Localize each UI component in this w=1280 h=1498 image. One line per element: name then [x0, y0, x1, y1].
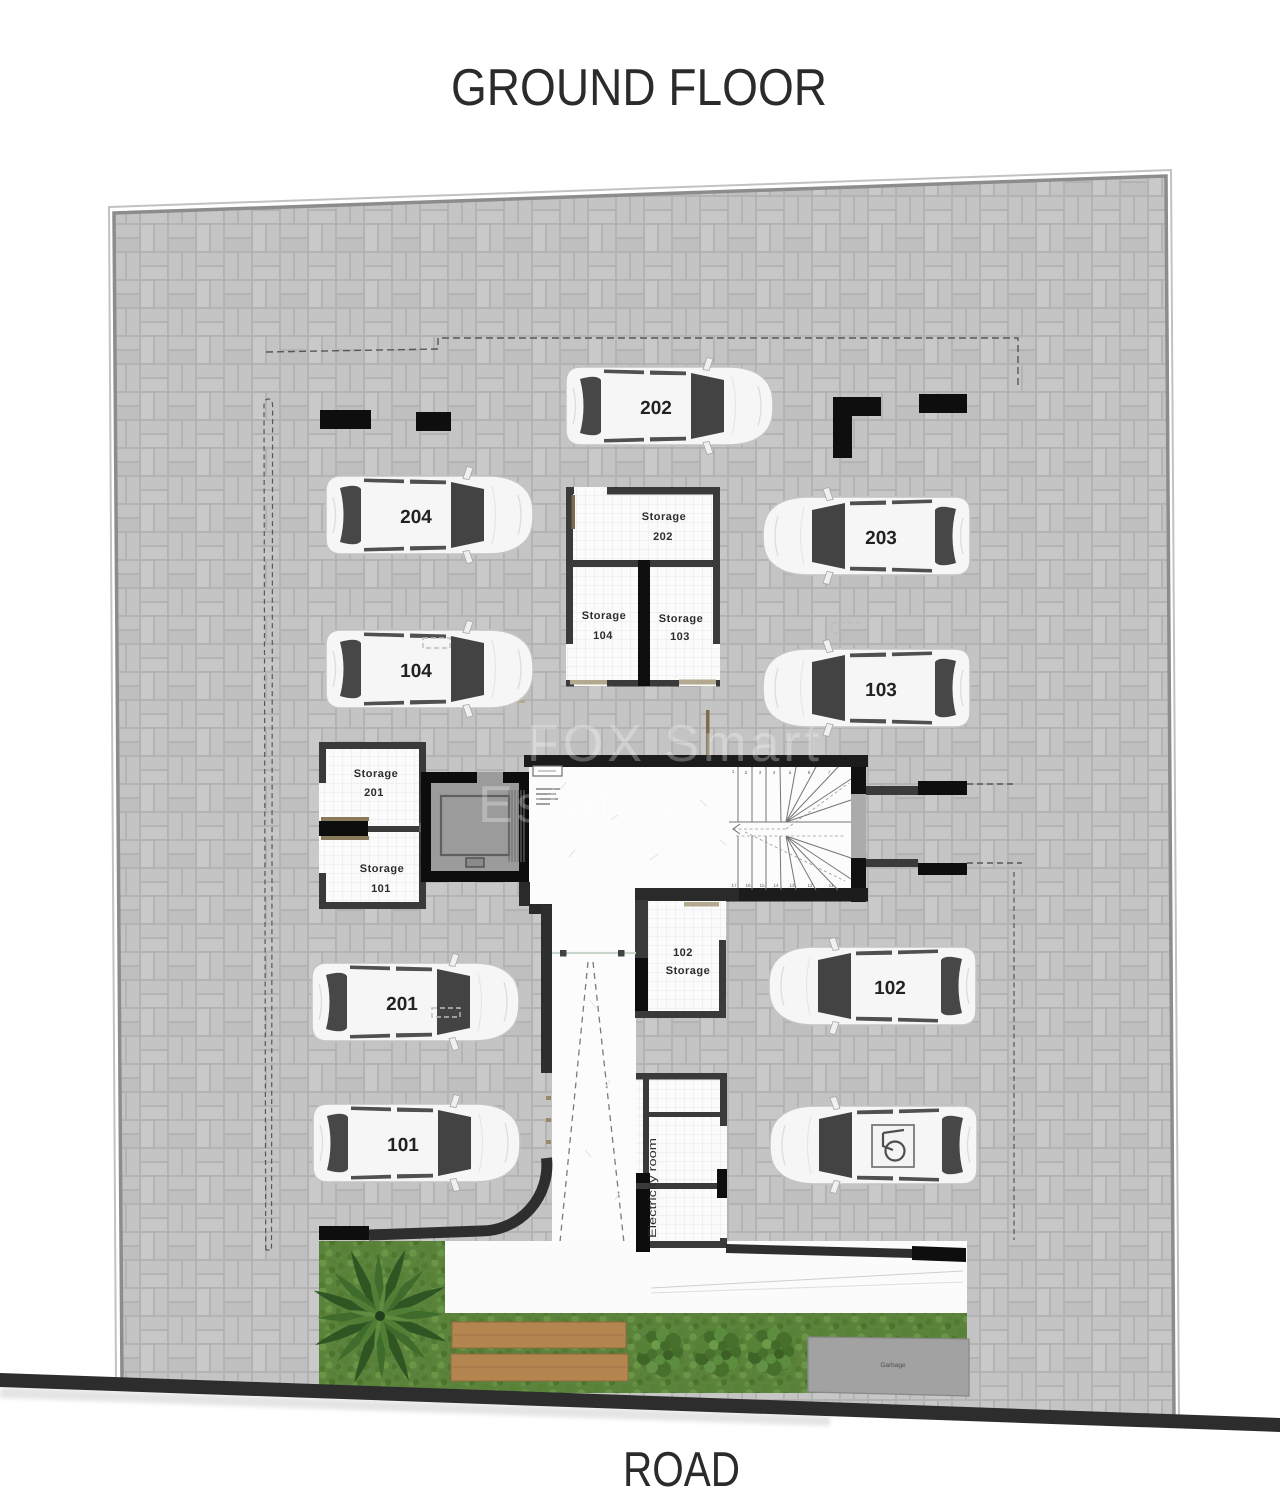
svg-text:Storage: Storage: [354, 768, 398, 780]
svg-text:202: 202: [640, 398, 672, 419]
svg-text:202: 202: [653, 531, 673, 543]
svg-text:103: 103: [670, 631, 690, 643]
svg-text:102: 102: [874, 978, 906, 999]
svg-text:Electricity room: Electricity room: [647, 1138, 659, 1238]
svg-text:Storage: Storage: [666, 965, 710, 977]
svg-text:Storage: Storage: [659, 613, 703, 625]
svg-text:12: 12: [807, 883, 813, 888]
svg-text:FOX Smart: FOX Smart: [527, 715, 823, 773]
svg-text:Estates: Estates: [478, 776, 679, 834]
svg-text:15: 15: [759, 883, 765, 888]
svg-text:Storage: Storage: [642, 511, 686, 523]
svg-text:104: 104: [400, 661, 432, 682]
svg-text:201: 201: [364, 787, 384, 799]
svg-text:13: 13: [789, 883, 795, 888]
svg-text:17: 17: [731, 883, 737, 888]
svg-text:101: 101: [387, 1135, 419, 1156]
svg-text:102: 102: [673, 947, 693, 959]
svg-text:14: 14: [773, 883, 779, 888]
svg-text:Storage: Storage: [582, 610, 626, 622]
svg-text:GROUND FLOOR: GROUND FLOOR: [451, 59, 827, 117]
svg-text:203: 203: [865, 528, 897, 549]
svg-text:ROAD: ROAD: [623, 1443, 740, 1497]
svg-text:103: 103: [865, 680, 897, 701]
svg-text:Storage: Storage: [360, 863, 404, 875]
svg-text:104: 104: [593, 630, 613, 642]
svg-text:7: 7: [828, 770, 831, 775]
svg-text:204: 204: [400, 507, 432, 528]
svg-text:16: 16: [745, 883, 751, 888]
svg-text:11: 11: [829, 883, 834, 888]
svg-text:101: 101: [371, 883, 391, 895]
svg-text:201: 201: [386, 994, 418, 1015]
svg-text:Garbage: Garbage: [880, 1362, 906, 1369]
